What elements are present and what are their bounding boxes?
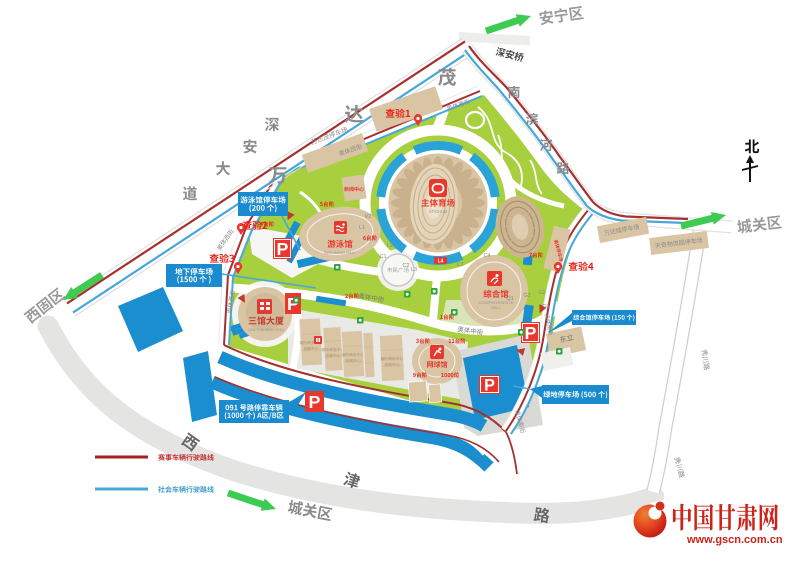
svg-text:L2: L2: [387, 243, 393, 249]
svg-text:LAN THE BUILDING: LAN THE BUILDING: [248, 327, 285, 332]
svg-text:L3: L3: [411, 267, 417, 273]
svg-text:Q1: Q1: [506, 296, 513, 302]
svg-text:STADIUM: STADIUM: [429, 209, 448, 214]
svg-text:G2: G2: [538, 290, 545, 296]
svg-text:P: P: [484, 377, 495, 395]
svg-text:C3: C3: [456, 262, 463, 268]
svg-text:P: P: [525, 323, 537, 343]
svg-text:HALL: HALL: [491, 305, 502, 310]
svg-text:L1: L1: [359, 225, 365, 231]
svg-text:V2: V2: [365, 214, 372, 220]
svg-text:L4: L4: [438, 259, 444, 265]
svg-text:P: P: [277, 239, 289, 259]
svg-text:C1: C1: [379, 254, 386, 260]
svg-text:P: P: [309, 392, 321, 412]
svg-text:C4: C4: [483, 253, 490, 259]
svg-text:SWIMMING HALL: SWIMMING HALL: [324, 250, 357, 255]
svg-text:G1: G1: [523, 293, 530, 299]
svg-text:O1: O1: [542, 304, 549, 310]
svg-text:C2: C2: [402, 263, 409, 269]
svg-text:www.gscn.com.cn: www.gscn.com.cn: [686, 534, 783, 546]
